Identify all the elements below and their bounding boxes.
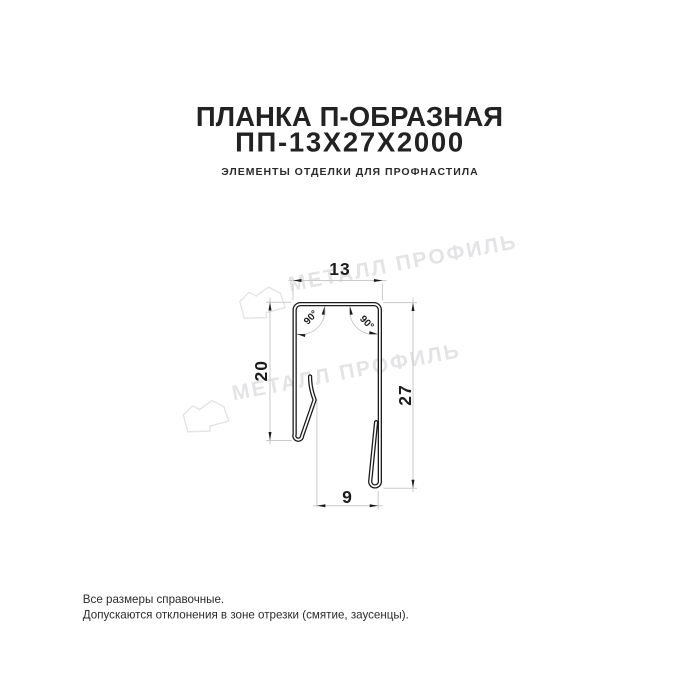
svg-text:Все размеры справочные.: Все размеры справочные.: [83, 593, 224, 606]
svg-text:90°: 90°: [357, 314, 375, 333]
svg-text:20: 20: [251, 360, 271, 381]
svg-text:МЕТАЛЛ ПРОФИЛЬ: МЕТАЛЛ ПРОФИЛЬ: [287, 230, 520, 296]
svg-text:90°: 90°: [302, 309, 320, 328]
svg-text:Допускаются отклонения в зоне: Допускаются отклонения в зоне отрезки (с…: [83, 608, 409, 621]
svg-text:ЭЛЕМЕНТЫ ОТДЕЛКИ ДЛЯ ПРОФНАСТИ: ЭЛЕМЕНТЫ ОТДЕЛКИ ДЛЯ ПРОФНАСТИЛА: [221, 166, 478, 178]
svg-text:ПП-13Х27Х2000: ПП-13Х27Х2000: [235, 127, 465, 158]
svg-text:9: 9: [342, 487, 352, 507]
svg-text:13: 13: [329, 259, 350, 279]
svg-text:27: 27: [395, 384, 415, 405]
